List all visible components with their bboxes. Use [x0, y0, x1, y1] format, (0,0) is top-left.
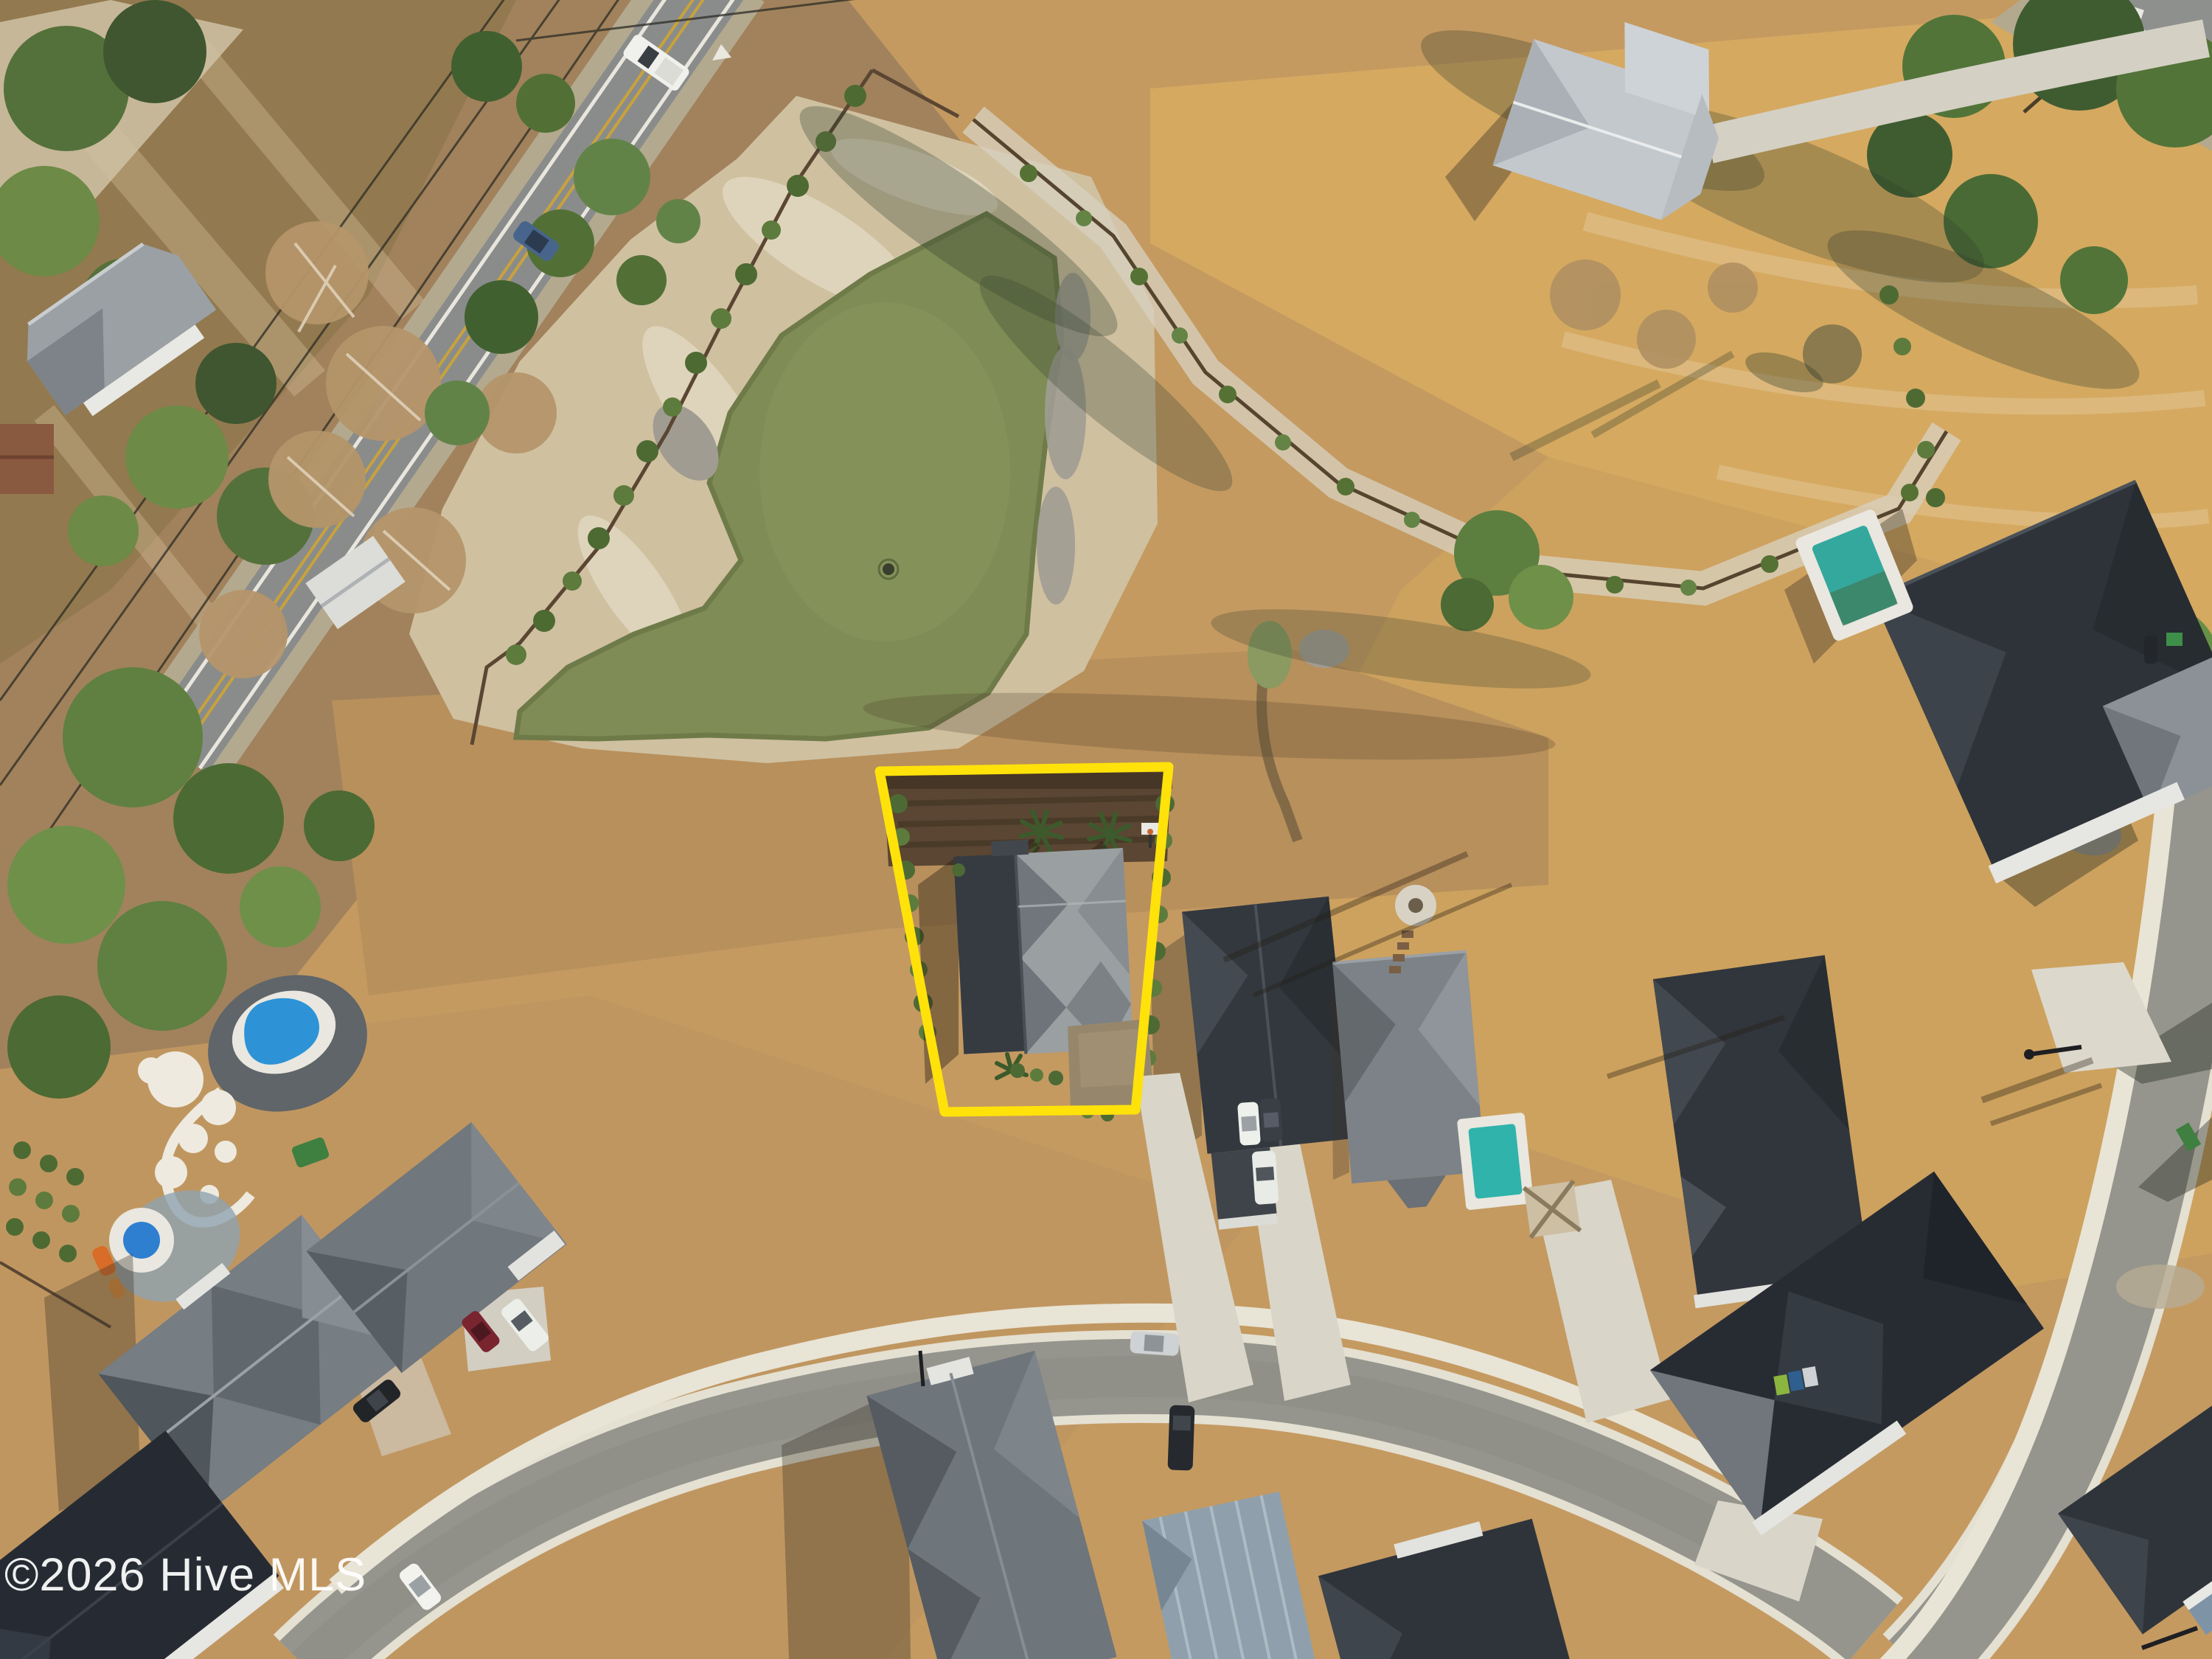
building-brown-edge [0, 424, 54, 494]
pond-aerator [883, 563, 894, 575]
aerial-photo: ©2026 Hive MLS [0, 0, 2212, 1659]
silver-car-street [1130, 1331, 1180, 1357]
watermark-text: ©2026 Hive MLS [4, 1548, 366, 1601]
parked-car-dark [2144, 636, 2157, 664]
trash-bin-green [2166, 633, 2183, 646]
paver-patio [1524, 1181, 1581, 1238]
black-van-driveway [1167, 1405, 1194, 1470]
spa [123, 1222, 160, 1259]
rect-pool [1457, 1113, 1534, 1211]
